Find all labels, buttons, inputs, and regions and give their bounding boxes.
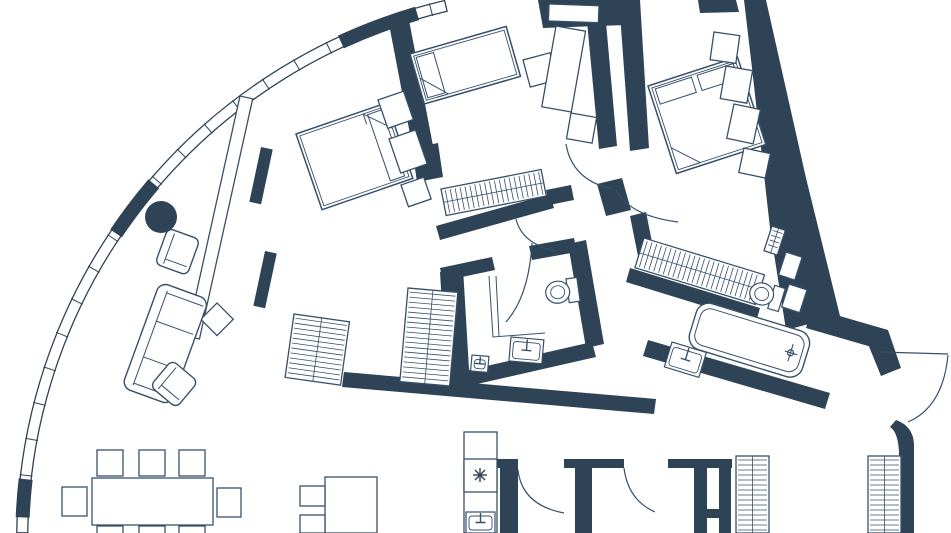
sink-centerbath (509, 337, 544, 364)
wall-pier-c-leg-right (719, 468, 731, 533)
wardrobe-left-low (285, 314, 349, 385)
structural-column (145, 201, 177, 233)
window-band (17, 1, 447, 533)
desk-bottom-chair-2 (300, 515, 325, 533)
desk-bottom (325, 477, 377, 533)
dining-chair-4 (62, 487, 87, 516)
desk-bottom-chair-1 (300, 486, 325, 506)
nightstand-right-1 (710, 32, 740, 63)
entry-door-leaf-outline (548, 4, 599, 23)
radiator-1-body (249, 147, 272, 204)
floor-plan-svg (0, 0, 951, 533)
dining-chair-3-outline (179, 450, 205, 476)
desk-center (542, 26, 586, 112)
desk-bottom-chair-1-outline (300, 486, 325, 506)
desk-bottom-outline (325, 477, 377, 533)
dining-chair-5 (217, 488, 241, 517)
dining-chair-7-outline (139, 526, 165, 533)
dining-chair-1-outline (97, 450, 123, 476)
radiator-2 (253, 251, 276, 308)
wardrobe-hall-1 (736, 456, 769, 533)
nightstand-right-4-outline (739, 148, 771, 178)
dining-chair-8 (179, 526, 205, 533)
wall-hall-junction (597, 178, 631, 216)
desk-chair-center (566, 113, 596, 143)
wall-pier-b (564, 459, 624, 533)
wardrobe-hall-2 (868, 456, 901, 533)
radiator-1 (249, 147, 272, 204)
floor-plan-canvas (0, 0, 951, 533)
door-arc-corridor-1 (518, 470, 564, 513)
bed-center (410, 26, 520, 104)
snowflake-center (478, 473, 482, 477)
dining-chair-6 (97, 526, 123, 533)
dining-chair-6-outline (97, 526, 123, 533)
wall-pier-c-shelf (694, 509, 731, 518)
nightstand-right-2-outline (720, 66, 752, 103)
dining-chair-1 (97, 450, 123, 476)
nightstand-right-1-outline (710, 32, 740, 63)
armchair-1-outline (155, 228, 200, 275)
desk-center-outline (542, 26, 586, 112)
door-arc-terrace (908, 355, 948, 422)
dining-chair-2 (139, 450, 165, 476)
sink-kitchen (466, 512, 495, 533)
desk-chair-center-outline (566, 113, 596, 143)
sink-mini (471, 355, 489, 372)
dining-table (92, 478, 213, 525)
armchair-1 (155, 228, 200, 275)
dining-chair-8-outline (179, 526, 205, 533)
dining-chair-5-outline (217, 488, 241, 517)
dining-chair-2-outline (139, 450, 165, 476)
wall-centerbath-stub (546, 185, 574, 205)
dining-chair-3 (179, 450, 205, 476)
window-wall (16, 1, 447, 533)
entry-door-leaf (548, 4, 599, 23)
nightstand-right-2 (720, 66, 752, 103)
wall-pier-c-top (668, 459, 732, 468)
door-arc-corridor-2 (624, 468, 655, 512)
centerbath-screen-2 (496, 276, 499, 336)
window-wall-pier (16, 478, 33, 517)
dining-table-outline (92, 478, 213, 525)
desk-bottom-chair-2-outline (300, 515, 325, 533)
dining-chair-4-outline (62, 487, 87, 516)
wall-entry-top-2 (698, 0, 739, 13)
door-arc-centerbath (506, 243, 532, 322)
radiator-2-body (253, 251, 276, 308)
wall-pier-c-leg-left (694, 468, 707, 533)
nightstand-right-4 (739, 148, 771, 178)
toilet-centerbath (544, 277, 580, 305)
wall-rightroom-left (619, 0, 649, 151)
wardrobe-column (400, 288, 458, 386)
dining-chair-7 (139, 526, 165, 533)
fridge-snowflake (473, 468, 487, 482)
